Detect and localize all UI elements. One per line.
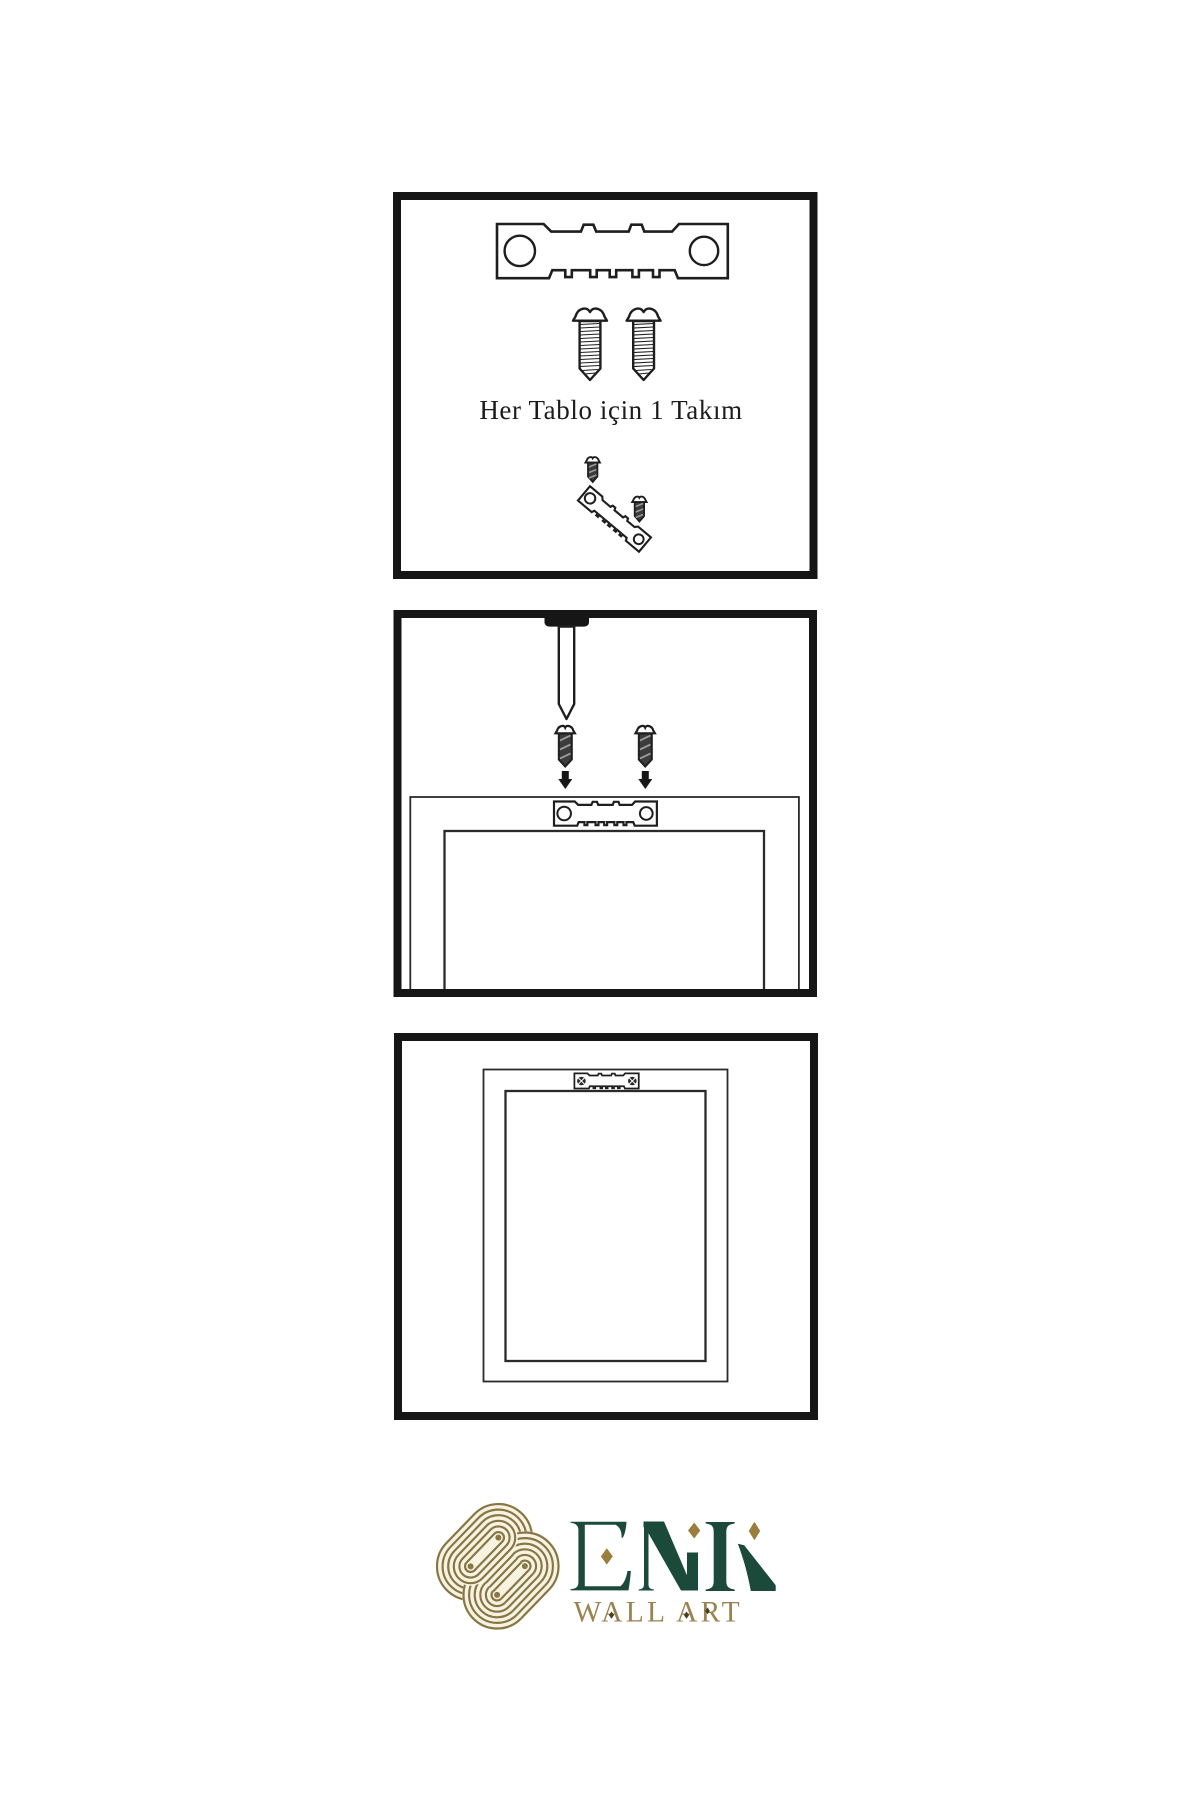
- svg-text:Her Tablo için 1 Takım: Her Tablo için 1 Takım: [479, 395, 742, 425]
- svg-text:WALL ART: WALL ART: [574, 1596, 743, 1628]
